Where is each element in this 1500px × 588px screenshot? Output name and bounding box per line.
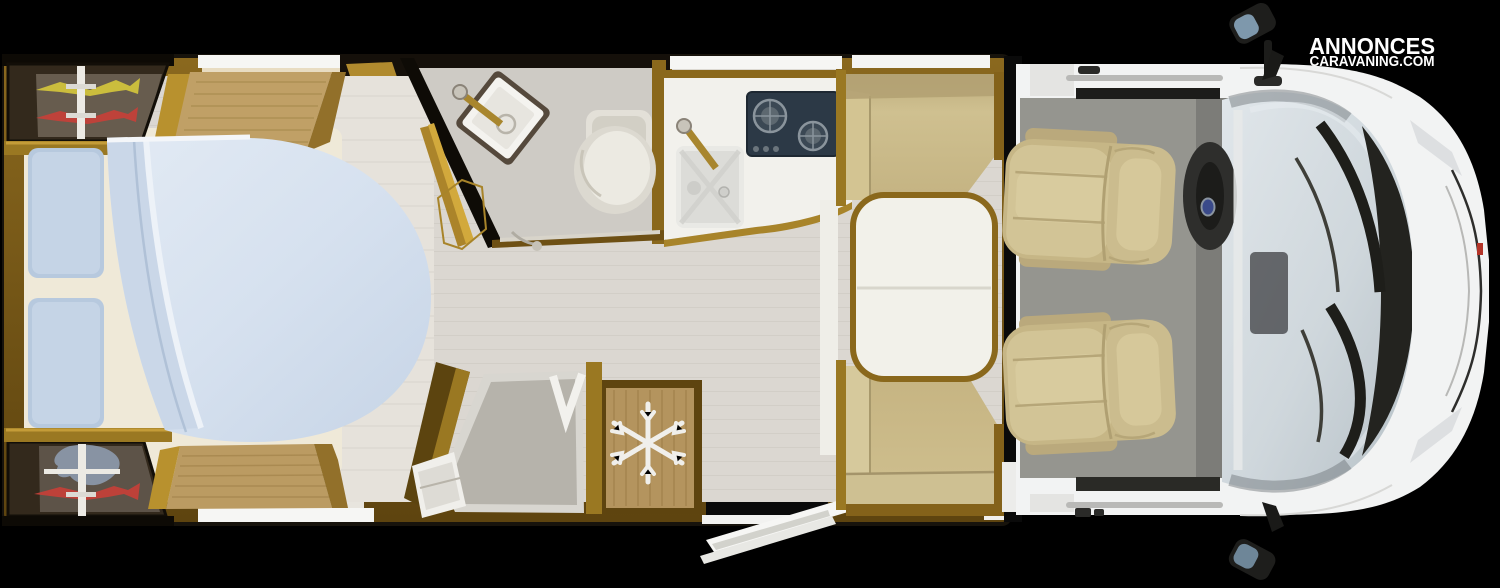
svg-text:CARAVANING.COM: CARAVANING.COM bbox=[1310, 54, 1435, 70]
